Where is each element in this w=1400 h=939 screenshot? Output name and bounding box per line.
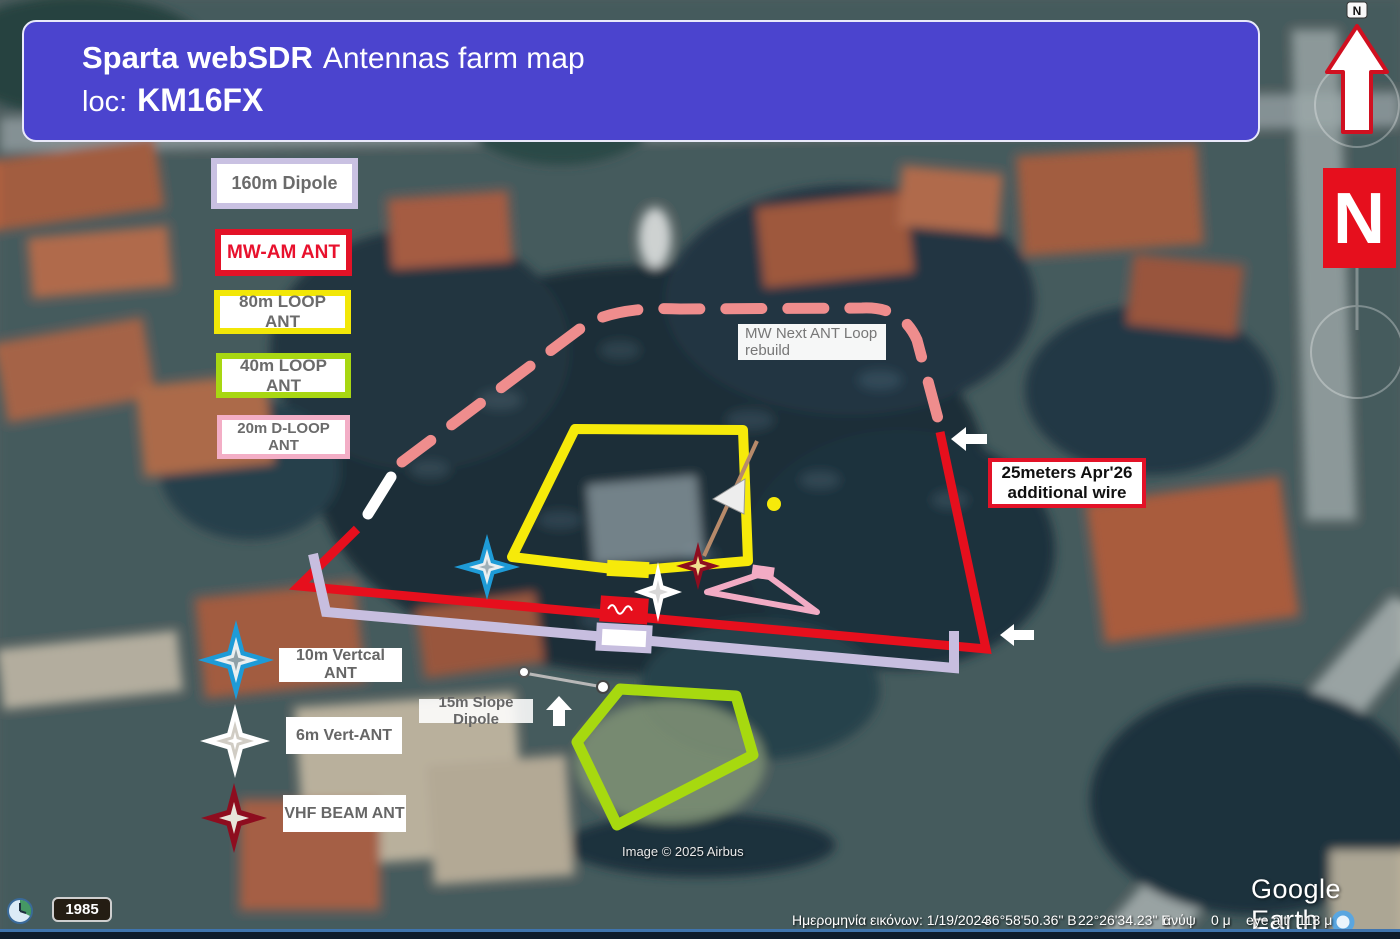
legend-160m-dipole: 160m Dipole [211, 158, 358, 209]
status-eye-alt-label: eye alt [1246, 912, 1287, 928]
historical-imagery-year-chip[interactable]: 1985 [52, 897, 112, 922]
lavender-box-marker [598, 626, 649, 651]
svg-text:N: N [1353, 4, 1362, 18]
label-25m-additional-wire: 25meters Apr'26additional wire [988, 458, 1146, 508]
clock-icon[interactable] [8, 899, 32, 923]
compass-n-chip[interactable]: N [1347, 2, 1367, 18]
label-vhf-beam-ant: VHF BEAM ANT [283, 795, 406, 832]
title-banner: Sparta webSDRAntennas farm map loc:KM16F… [22, 20, 1260, 142]
label-10m-vertical-ant: 10m Vertcal ANT [279, 648, 402, 682]
banner-locator: loc:KM16FX [82, 79, 1258, 123]
north-box: N [1323, 168, 1396, 268]
red-box-marker [599, 595, 649, 624]
bottom-bar [0, 932, 1400, 939]
status-elev-value: 0 μ [1211, 912, 1231, 928]
legend-mw-am-ant: MW-AM ANT [215, 229, 352, 276]
legend-80m-loop-ant: 80m LOOP ANT [214, 290, 351, 334]
imagery-credit: Image © 2025 Airbus [622, 844, 744, 859]
status-latitude: 36°58'50.36" Β [984, 912, 1077, 928]
svg-text:N: N [1333, 179, 1385, 259]
legend-40m-loop-ant: 40m LOOP ANT [216, 353, 351, 398]
status-longitude: 22°26'34.23" Ε [1078, 912, 1171, 928]
yellow-feedpoint-marker [607, 560, 650, 578]
status-eye-alt-value: 113 μ [1298, 912, 1332, 928]
google-earth-window: N N Sparta webSDRAntennas farm map loc:K… [0, 0, 1400, 939]
label-15m-slope-dipole: 15m Slope Dipole [419, 699, 533, 723]
label-mw-next-loop-rebuild: MW Next ANT Looprebuild [738, 324, 886, 360]
banner-title: Sparta webSDRAntennas farm map [82, 38, 1258, 79]
status-elev-label: ανύψ [1163, 912, 1196, 928]
yellow-dot-marker [767, 497, 781, 511]
legend-20m-d-loop-ant: 20m D-LOOP ANT [217, 415, 350, 459]
label-6m-vert-ant: 6m Vert-ANT [286, 717, 402, 754]
status-imagery-date: Ημερομηνία εικόνων: 1/19/2024 [792, 912, 989, 928]
